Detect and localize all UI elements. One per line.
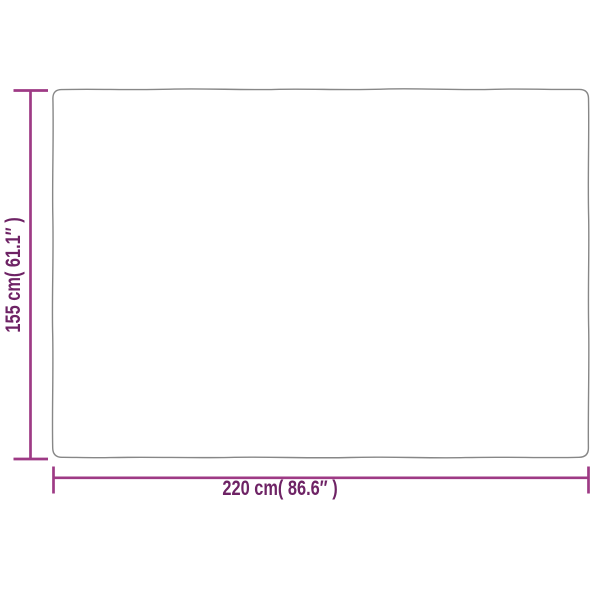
product-outline [52, 89, 588, 458]
diagram-canvas [0, 0, 600, 600]
dimension-diagram: 155 cm( 61.1″ ) 220 cm( 86.6″ ) [0, 0, 600, 600]
width-dimension-label: 220 cm( 86.6″ ) [202, 476, 358, 502]
height-dimension-label: 155 cm( 61.1″ ) [1, 197, 27, 353]
